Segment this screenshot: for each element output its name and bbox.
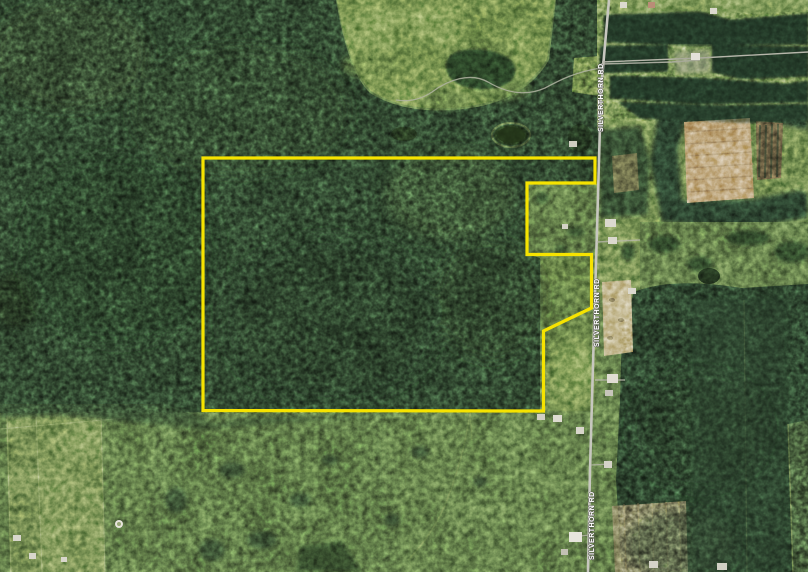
svg-text:SILVERTHORN RD: SILVERTHORN RD [598,63,605,132]
svg-text:SILVERTHORN RD: SILVERTHORN RD [589,491,596,560]
svg-text:SILVERTHORN RD: SILVERTHORN RD [594,278,601,347]
